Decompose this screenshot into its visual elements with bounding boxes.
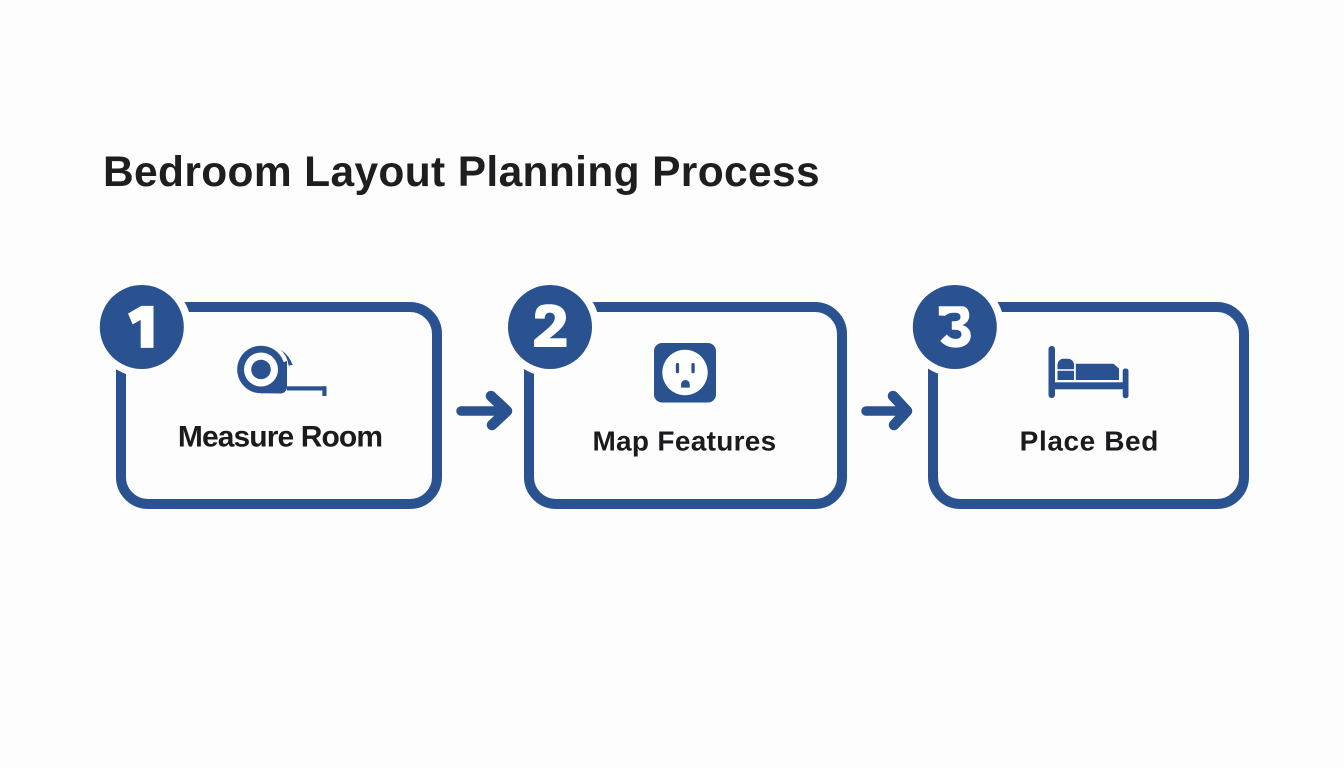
svg-text:Measure Room: Measure Room [178, 421, 382, 454]
svg-text:Bedroom Layout Planning Proces: Bedroom Layout Planning Process [103, 149, 820, 196]
svg-text:Place Bed: Place Bed [1020, 426, 1159, 457]
svg-text:Map Features: Map Features [592, 425, 776, 456]
